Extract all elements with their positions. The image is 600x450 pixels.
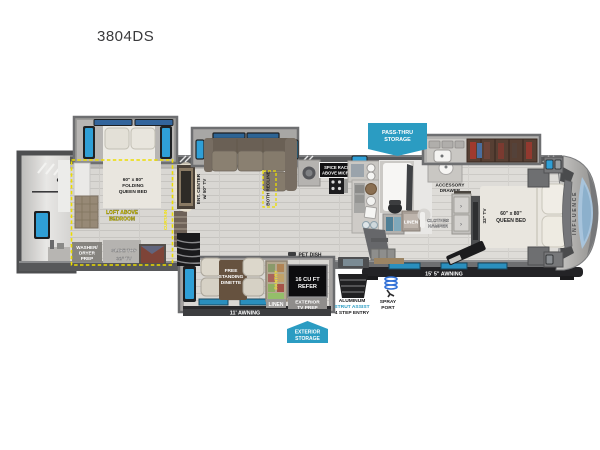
svg-text:LOFT ABOVE: LOFT ABOVE	[106, 210, 139, 216]
svg-text:LINEN: LINEN	[269, 302, 284, 308]
svg-text:STORAGE: STORAGE	[295, 336, 320, 342]
svg-text:QUEEN BED: QUEEN BED	[119, 189, 148, 195]
svg-text:TV PREP: TV PREP	[297, 305, 318, 311]
svg-text:SLIDE TOP: SLIDE TOP	[111, 248, 137, 254]
svg-text:16 CU FT: 16 CU FT	[295, 277, 320, 283]
svg-text:4 STEP ENTRY: 4 STEP ENTRY	[335, 310, 370, 316]
svg-text:FREE: FREE	[225, 268, 239, 274]
svg-text:CURTAIN: CURTAIN	[163, 209, 168, 230]
svg-text:STRUT ASSIST: STRUT ASSIST	[334, 304, 369, 310]
svg-text:STANDING: STANDING	[219, 274, 244, 280]
svg-text:REFER: REFER	[298, 284, 317, 290]
svg-text:BEDROOM: BEDROOM	[109, 217, 135, 223]
svg-text:ACCESSORY: ACCESSORY	[436, 183, 465, 188]
svg-text:INFLUENCE: INFLUENCE	[572, 191, 578, 235]
svg-text:PANTRY: PANTRY	[274, 270, 280, 290]
svg-text:SPICE RACK: SPICE RACK	[324, 165, 350, 170]
svg-text:15' 5" AWNING: 15' 5" AWNING	[425, 272, 463, 278]
svg-text:FOLDING: FOLDING	[122, 183, 144, 189]
svg-text:CLOTHES: CLOTHES	[427, 218, 449, 223]
svg-text:BOTH RECLINE: BOTH RECLINE	[266, 171, 271, 205]
svg-text:3804DS: 3804DS	[97, 28, 154, 45]
svg-text:PREP: PREP	[81, 256, 94, 261]
svg-text:ALUMINUM: ALUMINUM	[339, 298, 366, 304]
svg-text:STORAGE: STORAGE	[384, 137, 411, 143]
svg-text:DINETTE: DINETTE	[221, 280, 242, 286]
svg-text:32" TV: 32" TV	[116, 256, 132, 262]
svg-text:32" TV: 32" TV	[482, 208, 488, 224]
svg-text:PET DISH: PET DISH	[298, 253, 321, 259]
svg-text:PASS-THRU: PASS-THRU	[382, 130, 413, 136]
svg-text:HAMPER: HAMPER	[428, 224, 449, 229]
svg-text:›: ›	[460, 204, 462, 210]
svg-text:›: ›	[460, 222, 462, 228]
svg-text:ENT. CENTER: ENT. CENTER	[196, 173, 201, 204]
svg-text:SPRAY: SPRAY	[380, 299, 397, 305]
svg-text:QUEEN BED: QUEEN BED	[496, 218, 526, 224]
svg-text:WASHER/: WASHER/	[76, 245, 98, 250]
svg-text:EXTERIOR: EXTERIOR	[295, 330, 321, 336]
svg-text:60" x 80": 60" x 80"	[123, 177, 144, 183]
svg-text:11' AWNING: 11' AWNING	[230, 311, 260, 317]
svg-text:EXTERIOR: EXTERIOR	[295, 300, 320, 306]
svg-text:LINEN: LINEN	[404, 220, 419, 226]
svg-text:w/ 50" TV: w/ 50" TV	[202, 178, 207, 200]
svg-text:60" x 80": 60" x 80"	[500, 211, 522, 217]
svg-text:PORT: PORT	[381, 305, 395, 311]
svg-text:DRYER: DRYER	[79, 251, 96, 256]
